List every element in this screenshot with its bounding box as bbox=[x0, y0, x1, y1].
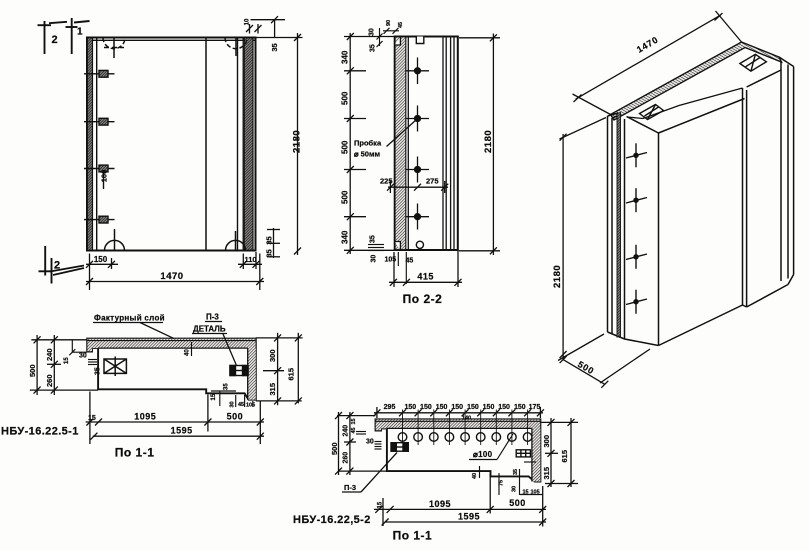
svg-text:415: 415 bbox=[417, 272, 434, 282]
svg-text:30: 30 bbox=[366, 439, 374, 446]
svg-text:150: 150 bbox=[451, 404, 463, 411]
svg-text:35: 35 bbox=[270, 43, 279, 51]
svg-text:1595: 1595 bbox=[458, 512, 480, 522]
svg-text:240: 240 bbox=[45, 348, 54, 361]
svg-text:45: 45 bbox=[398, 22, 404, 28]
svg-text:150: 150 bbox=[514, 404, 526, 411]
svg-text:1095: 1095 bbox=[429, 499, 451, 509]
svg-text:30: 30 bbox=[369, 28, 376, 36]
svg-text:35: 35 bbox=[370, 44, 377, 52]
svg-text:105: 105 bbox=[246, 403, 255, 409]
svg-text:15: 15 bbox=[211, 393, 217, 400]
svg-text:30: 30 bbox=[79, 353, 87, 360]
svg-text:295: 295 bbox=[384, 404, 396, 411]
svg-text:150: 150 bbox=[436, 404, 448, 411]
svg-text:35: 35 bbox=[95, 367, 102, 375]
svg-text:НБУ-16.22,5-2: НБУ-16.22,5-2 bbox=[293, 514, 371, 526]
svg-text:15: 15 bbox=[64, 357, 70, 364]
svg-text:35: 35 bbox=[265, 249, 274, 257]
svg-text:275: 275 bbox=[426, 177, 439, 186]
svg-text:500: 500 bbox=[341, 190, 350, 204]
svg-text:500: 500 bbox=[227, 412, 244, 422]
svg-text:615: 615 bbox=[560, 450, 569, 463]
svg-text:15: 15 bbox=[378, 501, 384, 508]
svg-text:40: 40 bbox=[472, 473, 478, 479]
svg-text:35: 35 bbox=[370, 235, 377, 243]
svg-text:П-3: П-3 bbox=[206, 313, 219, 322]
svg-text:1: 1 bbox=[77, 27, 83, 38]
svg-text:1595: 1595 bbox=[171, 426, 193, 436]
svg-text:2180: 2180 bbox=[552, 265, 563, 288]
svg-text:615: 615 bbox=[287, 368, 296, 381]
svg-text:340: 340 bbox=[341, 50, 350, 64]
svg-text:⌀ 50мм: ⌀ 50мм bbox=[354, 150, 380, 159]
svg-text:150: 150 bbox=[483, 404, 495, 411]
svg-text:15: 15 bbox=[88, 415, 96, 422]
svg-text:340: 340 bbox=[341, 230, 350, 244]
svg-text:500: 500 bbox=[509, 498, 526, 508]
svg-text:260: 260 bbox=[343, 452, 350, 464]
svg-text:2: 2 bbox=[54, 260, 60, 272]
svg-text:175: 175 bbox=[529, 404, 541, 411]
svg-text:По 1-1: По 1-1 bbox=[115, 446, 155, 460]
svg-text:⌀100: ⌀100 bbox=[473, 450, 493, 459]
svg-text:Пробка: Пробка bbox=[354, 139, 382, 148]
svg-text:300: 300 bbox=[268, 349, 277, 362]
svg-text:35: 35 bbox=[224, 383, 230, 390]
svg-text:500: 500 bbox=[341, 140, 350, 154]
svg-text:30: 30 bbox=[230, 401, 236, 407]
svg-text:110: 110 bbox=[244, 255, 256, 264]
svg-text:2180: 2180 bbox=[292, 130, 303, 153]
svg-text:35: 35 bbox=[513, 469, 519, 475]
svg-text:НБУ-16.22.5-1: НБУ-16.22.5-1 bbox=[1, 426, 79, 438]
svg-text:150: 150 bbox=[420, 404, 432, 411]
svg-text:500: 500 bbox=[341, 91, 350, 105]
svg-text:Фактурный слой: Фактурный слой bbox=[94, 314, 165, 323]
svg-text:260: 260 bbox=[45, 374, 54, 387]
svg-text:ДЕТАЛЬ: ДЕТАЛЬ bbox=[193, 325, 226, 334]
svg-text:1095: 1095 bbox=[134, 412, 156, 422]
svg-text:315: 315 bbox=[268, 383, 277, 396]
svg-text:30: 30 bbox=[512, 486, 518, 492]
svg-text:45: 45 bbox=[351, 427, 357, 433]
svg-text:10: 10 bbox=[245, 18, 251, 25]
svg-text:315: 315 bbox=[542, 467, 551, 480]
svg-text:2180: 2180 bbox=[483, 130, 494, 153]
svg-text:150: 150 bbox=[94, 255, 108, 264]
svg-text:40: 40 bbox=[185, 349, 191, 356]
svg-text:45: 45 bbox=[238, 402, 244, 408]
svg-text:30: 30 bbox=[371, 255, 378, 263]
svg-text:300: 300 bbox=[542, 435, 551, 448]
svg-text:500: 500 bbox=[28, 364, 37, 377]
svg-text:500: 500 bbox=[330, 442, 339, 455]
svg-text:225: 225 bbox=[380, 177, 393, 186]
svg-text:1470: 1470 bbox=[160, 271, 183, 282]
svg-text:2: 2 bbox=[52, 34, 58, 46]
svg-text:240: 240 bbox=[343, 425, 350, 437]
svg-text:П-3: П-3 bbox=[344, 483, 356, 492]
svg-text:140: 140 bbox=[462, 416, 471, 422]
svg-text:90: 90 bbox=[386, 20, 392, 26]
svg-text:100: 100 bbox=[100, 170, 109, 183]
svg-text:15: 15 bbox=[351, 418, 357, 424]
svg-text:35: 35 bbox=[265, 236, 274, 244]
svg-text:150: 150 bbox=[404, 404, 416, 411]
svg-text:150: 150 bbox=[467, 404, 479, 411]
svg-text:150: 150 bbox=[498, 404, 510, 411]
svg-text:По 1-1: По 1-1 bbox=[393, 529, 433, 543]
svg-text:По 2-2: По 2-2 bbox=[403, 292, 443, 306]
svg-text:45: 45 bbox=[406, 258, 414, 265]
